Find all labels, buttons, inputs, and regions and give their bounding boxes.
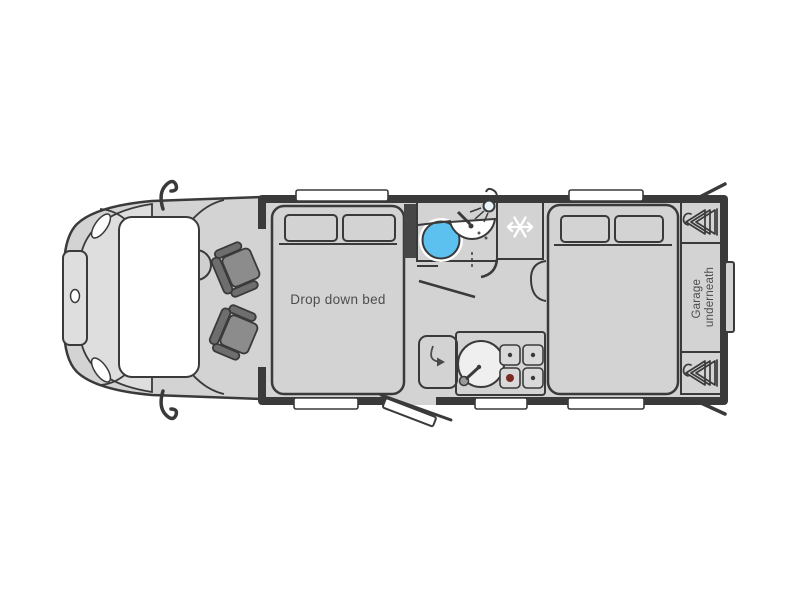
motorhome-floorplan: Drop down bed: [0, 0, 800, 600]
window-bottom-rear: [568, 398, 644, 409]
floorplan-svg: Drop down bed: [0, 0, 800, 600]
window-top-front: [296, 190, 388, 201]
drop-down-bed-label: Drop down bed: [290, 292, 385, 307]
window-bottom-kitchen: [475, 398, 527, 409]
tall-cabinet: [404, 204, 418, 258]
cab: [63, 182, 262, 419]
garage-door-handle: [725, 262, 734, 332]
window-top-rear: [569, 190, 643, 201]
front-badge: [71, 290, 80, 303]
garage-label: Garage underneath: [691, 267, 716, 327]
windscreen: [119, 217, 199, 377]
window-bottom-front: [294, 398, 358, 409]
sink-icon: [458, 341, 504, 387]
